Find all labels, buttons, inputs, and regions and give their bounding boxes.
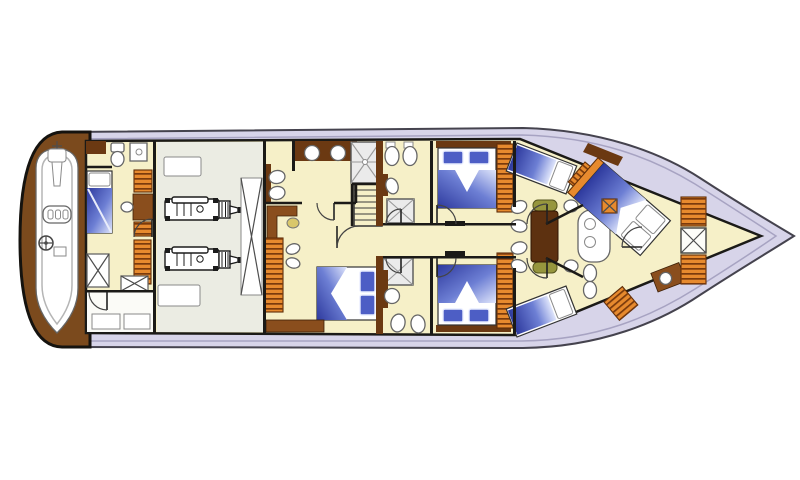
round-sink-1: [585, 219, 596, 230]
crew-toilet-tank: [111, 143, 124, 152]
lazarette-step: [92, 314, 120, 329]
wc-fwd-stbd-1: [584, 265, 597, 282]
crew-wardrobe: [87, 254, 109, 287]
pillow-bottom-2: [469, 309, 489, 322]
pillow-top-2: [469, 151, 489, 164]
master-bed: [317, 262, 383, 324]
corridor-wall-bottom: [383, 256, 516, 259]
crew-bed: [87, 171, 112, 233]
wall-master-right-upper: [376, 141, 383, 226]
pillow-top-1: [443, 151, 463, 164]
yacht-floor-plan: [0, 0, 800, 480]
wall-lazarette: [86, 290, 153, 293]
wall-cabin-fwd-bottom: [513, 268, 516, 334]
crew-pillow: [89, 173, 110, 186]
crew-chair: [121, 202, 133, 212]
toilet-top-2: [403, 147, 417, 166]
master-locker-stripes: [264, 238, 283, 312]
dinette-bench-top: [533, 200, 557, 211]
wardrobe-top-stripes: [497, 144, 513, 212]
crew-toilet: [111, 152, 124, 167]
crew-locker-stripes: [134, 170, 152, 192]
yacht-floor-plan-stage: [0, 0, 800, 480]
bench-bottom: [445, 251, 465, 256]
fuel-tank: [241, 178, 262, 295]
wall-bath-cabin-bottom: [430, 257, 433, 334]
swim-platform: [20, 132, 90, 347]
wall-crew-engine: [153, 141, 156, 333]
guest-bed-top: [438, 148, 496, 208]
crew-basin: [136, 149, 142, 155]
master-vanity-counter: [294, 141, 357, 161]
crew-hatch: [121, 276, 148, 291]
tender: [36, 141, 78, 333]
vip-cabinet: [602, 199, 617, 213]
bow-lockers: [681, 197, 706, 284]
master-sink-1: [305, 146, 320, 161]
round-sink-2: [585, 237, 596, 248]
master-sink-2: [331, 146, 346, 161]
wall-master-bath-post: [292, 141, 295, 171]
wall-cabin-fwd-top: [513, 141, 516, 207]
pillow-bottom-1: [443, 309, 463, 322]
crew-cabinet-2-stripes: [134, 222, 152, 236]
wall-bath-cabin-top: [430, 141, 433, 225]
wall-master-right-lower: [376, 256, 383, 334]
wc-fwd-stbd-2: [584, 282, 597, 299]
engine-room-bench-bottom: [158, 285, 200, 306]
master-shower: [351, 142, 380, 183]
crew-cabinet: [86, 141, 106, 154]
wall-engine-master: [263, 141, 266, 333]
sink-bottom: [385, 289, 400, 304]
engine-room-bench-top: [164, 157, 201, 176]
master-pillow-1: [360, 271, 375, 292]
master-pillow-2: [360, 295, 375, 315]
master-dresser: [266, 320, 324, 332]
tender-seat: [43, 206, 71, 223]
corridor-wall-top: [383, 223, 516, 226]
desk-chair: [287, 218, 299, 228]
lazarette-step-2: [124, 314, 150, 329]
dinette-bench-bottom: [533, 262, 557, 273]
toilet-top-1: [385, 147, 399, 166]
